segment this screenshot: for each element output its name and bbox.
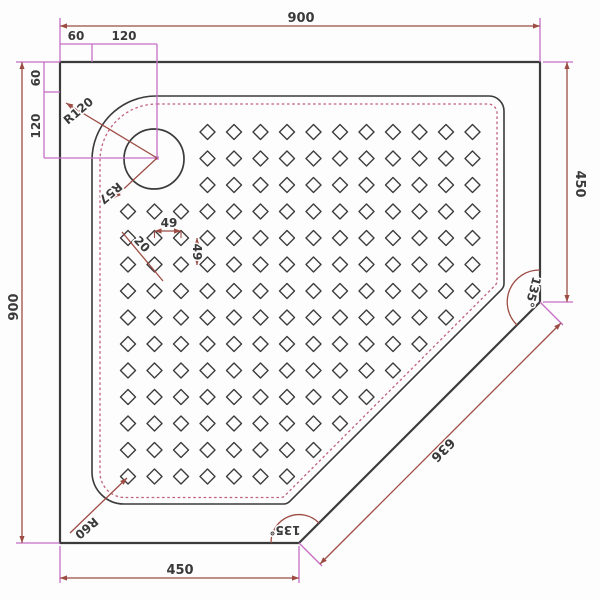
diamond-emboss (306, 257, 321, 272)
diamond-emboss (359, 231, 374, 246)
diamond-emboss (359, 337, 374, 352)
diamond-emboss (253, 416, 268, 431)
diamond-emboss (253, 178, 268, 193)
dimension-arrow (60, 23, 67, 28)
diamond-emboss (412, 257, 427, 272)
diamond-emboss (147, 284, 162, 299)
diamond-emboss (465, 231, 480, 246)
diamond-emboss (200, 310, 215, 325)
inner-dashed-line (100, 104, 497, 498)
diamond-emboss (465, 284, 480, 299)
diamond-emboss (227, 416, 242, 431)
extension-line (540, 302, 563, 325)
diamond-emboss (359, 284, 374, 299)
diamond-emboss (121, 204, 136, 219)
diamond-emboss (174, 310, 189, 325)
diamond-emboss (280, 231, 295, 246)
diamond-emboss (227, 443, 242, 458)
dimension-arrow (292, 575, 299, 580)
diamond-emboss (253, 363, 268, 378)
diamond-emboss (359, 125, 374, 140)
diamond-emboss (306, 204, 321, 219)
dim-right-height-label: 450 (572, 170, 587, 197)
diamond-emboss (121, 390, 136, 405)
diamond-emboss (147, 469, 162, 484)
diamond-emboss (439, 204, 454, 219)
diamond-emboss (412, 125, 427, 140)
diamond-emboss (174, 257, 189, 272)
diamond-emboss (386, 257, 401, 272)
diamond-emboss (200, 178, 215, 193)
diamond-emboss (253, 257, 268, 272)
diamond-emboss (359, 204, 374, 219)
extension-line (299, 543, 322, 566)
pattern-pitch-h-label: 49 (161, 216, 178, 230)
diamond-emboss (386, 363, 401, 378)
diamond-emboss (121, 443, 136, 458)
diamond-emboss (121, 416, 136, 431)
diamond-emboss (333, 337, 348, 352)
diamond-emboss (280, 151, 295, 166)
diamond-emboss (306, 363, 321, 378)
diamond-emboss (280, 310, 295, 325)
diamond-emboss (359, 390, 374, 405)
diamond-emboss (333, 257, 348, 272)
diamond-emboss (465, 257, 480, 272)
diamond-emboss (227, 151, 242, 166)
diamond-emboss (280, 390, 295, 405)
diamond-emboss (465, 204, 480, 219)
diamond-emboss (253, 231, 268, 246)
diamond-emboss (253, 443, 268, 458)
diamond-emboss (200, 443, 215, 458)
diamond-emboss (147, 363, 162, 378)
diamond-emboss (359, 257, 374, 272)
diamond-emboss (386, 125, 401, 140)
diamond-emboss (280, 204, 295, 219)
diamond-emboss (412, 284, 427, 299)
diamond-emboss (174, 443, 189, 458)
diamond-emboss (412, 337, 427, 352)
diamond-emboss (200, 390, 215, 405)
dimension-arrow (60, 575, 67, 580)
diamond-emboss (333, 416, 348, 431)
diamond-emboss (333, 390, 348, 405)
drain-radius-label: R57 (96, 179, 125, 206)
diamond-emboss (121, 310, 136, 325)
diamond-emboss (200, 151, 215, 166)
dim-left-height-label: 900 (7, 293, 22, 320)
diamond-emboss (147, 416, 162, 431)
diamond-emboss (174, 363, 189, 378)
diamond-emboss (333, 310, 348, 325)
diamond-emboss (227, 390, 242, 405)
diamond-emboss (280, 257, 295, 272)
dim-bottom-width-label: 450 (166, 563, 193, 578)
pattern-pitch-v-label: 49 (190, 244, 204, 261)
diamond-emboss (280, 125, 295, 140)
diamond-emboss (359, 151, 374, 166)
diamond-emboss (121, 257, 136, 272)
diamond-emboss (412, 178, 427, 193)
diamond-emboss (359, 310, 374, 325)
diamond-emboss (227, 231, 242, 246)
diamond-emboss (439, 125, 454, 140)
diamond-emboss (200, 204, 215, 219)
diamond-emboss (386, 178, 401, 193)
diamond-emboss (280, 337, 295, 352)
diamond-emboss (386, 284, 401, 299)
inner-corner-radius-label: R60 (72, 514, 101, 541)
angle-bottom-label: 135° (269, 523, 300, 537)
dimension-arrow (533, 23, 540, 28)
drain-offset-left-60-label: 60 (29, 70, 43, 87)
diamond-emboss (227, 310, 242, 325)
diamond-emboss (280, 469, 295, 484)
diamond-emboss (200, 416, 215, 431)
diamond-emboss (333, 204, 348, 219)
diamond-emboss (253, 151, 268, 166)
diamond-emboss (253, 125, 268, 140)
diamond-emboss (253, 284, 268, 299)
diamond-emboss (439, 310, 454, 325)
shower-tray-technical-drawing: 900 900 450 450 636 135° 135° R120 R57 R… (0, 0, 600, 600)
diamond-emboss (174, 416, 189, 431)
diamond-emboss (306, 416, 321, 431)
angle-top-label: 135° (522, 275, 544, 309)
diamond-emboss (386, 151, 401, 166)
diamond-emboss (253, 204, 268, 219)
diamond-emboss (412, 204, 427, 219)
diamond-emboss (280, 443, 295, 458)
diamond-emboss (227, 469, 242, 484)
diamond-emboss (227, 284, 242, 299)
diamond-emboss (412, 231, 427, 246)
diamond-emboss (412, 151, 427, 166)
diamond-emboss (280, 416, 295, 431)
diamond-emboss (200, 363, 215, 378)
dimension-arrow (564, 62, 569, 69)
diamond-emboss (227, 337, 242, 352)
diamond-emboss (121, 337, 136, 352)
diamond-emboss (306, 310, 321, 325)
diamond-emboss (386, 231, 401, 246)
diamond-emboss (386, 337, 401, 352)
diamond-emboss (227, 204, 242, 219)
diamond-emboss (333, 284, 348, 299)
diamond-emboss (174, 469, 189, 484)
diamond-emboss (359, 363, 374, 378)
diamond-emboss (174, 284, 189, 299)
diamond-emboss (439, 257, 454, 272)
diamond-emboss (121, 363, 136, 378)
dimension-arrow (19, 62, 24, 69)
diamond-emboss (465, 125, 480, 140)
diamond-emboss (306, 443, 321, 458)
drain-offset-left-120-label: 120 (29, 113, 43, 138)
diamond-emboss (439, 284, 454, 299)
diamond-emboss (227, 257, 242, 272)
diamond-emboss (333, 363, 348, 378)
diamond-emboss (253, 469, 268, 484)
diamond-emboss (280, 178, 295, 193)
diamond-emboss (200, 337, 215, 352)
diamond-emboss (333, 125, 348, 140)
diamond-emboss (306, 125, 321, 140)
diamond-emboss (253, 337, 268, 352)
diamond-emboss (253, 390, 268, 405)
diamond-emboss (386, 204, 401, 219)
diamond-emboss (174, 390, 189, 405)
diamond-emboss (147, 390, 162, 405)
diamond-emboss (306, 337, 321, 352)
drain-offset-top-120-label: 120 (111, 29, 136, 43)
diamond-emboss (333, 231, 348, 246)
diamond-emboss (359, 178, 374, 193)
diamond-emboss (465, 178, 480, 193)
dim-diagonal-label: 636 (428, 435, 458, 465)
diamond-emboss (147, 443, 162, 458)
diamond-emboss (280, 284, 295, 299)
dimension-arrow (19, 536, 24, 543)
diamond-emboss (227, 178, 242, 193)
diamond-emboss (306, 390, 321, 405)
diamond-emboss (439, 231, 454, 246)
diamond-emboss (121, 284, 136, 299)
diamond-emboss (200, 469, 215, 484)
dimension-arrow (564, 295, 569, 302)
diamond-emboss (465, 151, 480, 166)
diamond-emboss (306, 178, 321, 193)
corner-radius-label: R120 (61, 95, 96, 128)
dim-top-width-label: 900 (287, 11, 314, 26)
diamond-emboss (412, 310, 427, 325)
diamond-emboss (227, 363, 242, 378)
diamond-emboss (147, 337, 162, 352)
drawing-canvas: 900 900 450 450 636 135° 135° R120 R57 R… (0, 0, 600, 600)
diamond-emboss (227, 125, 242, 140)
diamond-emboss (439, 178, 454, 193)
diamond-emboss (200, 284, 215, 299)
diamond-emboss (306, 151, 321, 166)
diamond-emboss (147, 310, 162, 325)
diamond-emboss (280, 363, 295, 378)
diamond-emboss (333, 178, 348, 193)
diamond-emboss (306, 231, 321, 246)
diamond-emboss (386, 310, 401, 325)
anti-slip-diamond-pattern (121, 125, 481, 485)
diamond-emboss (439, 151, 454, 166)
drain-offset-top-60-label: 60 (68, 29, 85, 43)
diamond-emboss (200, 125, 215, 140)
diamond-emboss (253, 310, 268, 325)
diamond-emboss (306, 284, 321, 299)
diamond-emboss (333, 151, 348, 166)
diamond-emboss (174, 337, 189, 352)
